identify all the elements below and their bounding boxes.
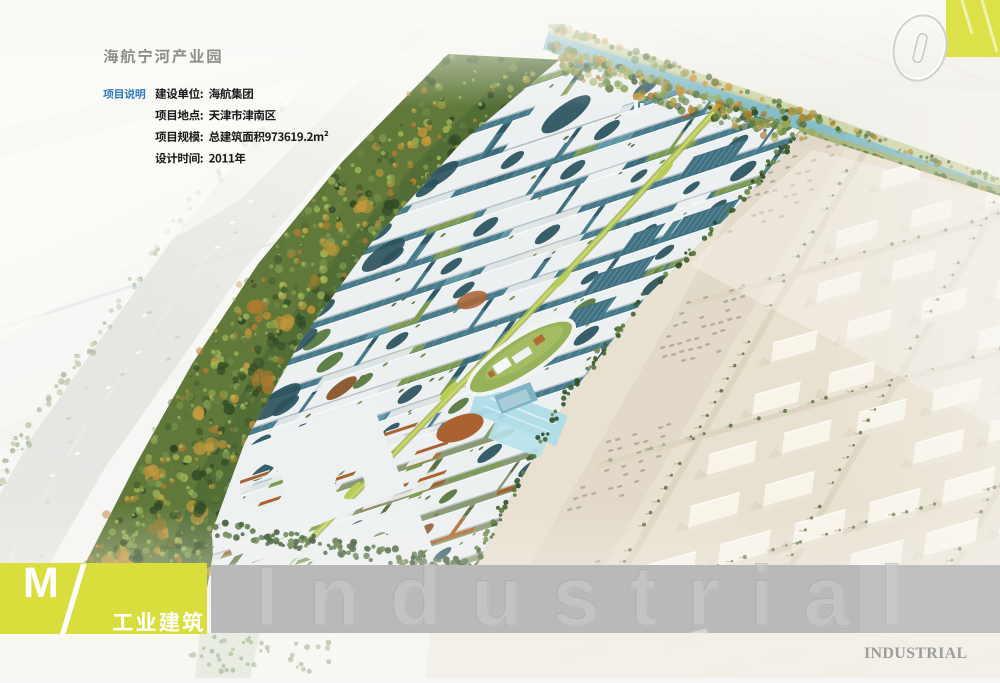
svg-text:Industrial: Industrial <box>255 549 933 643</box>
